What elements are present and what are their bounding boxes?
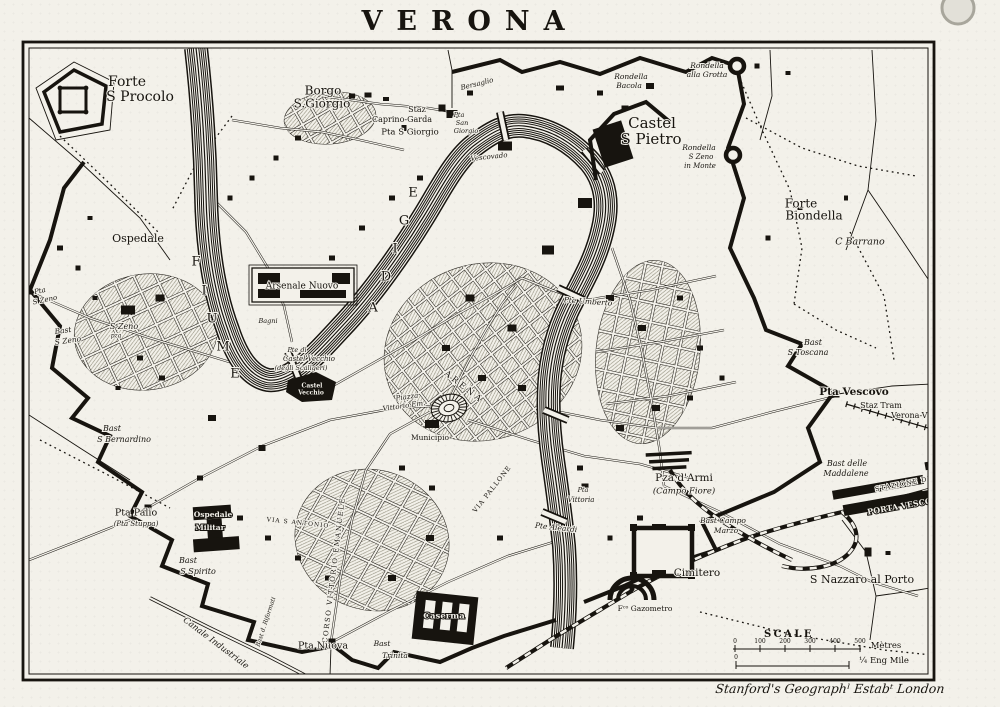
- map-label: D: [381, 270, 393, 285]
- map-label: Giorgio: [454, 127, 479, 135]
- map-label: Rondella: [689, 61, 724, 70]
- map-label: Marzo: [713, 526, 739, 535]
- railway-lines: [506, 404, 996, 668]
- map-label: Rondella: [681, 143, 716, 152]
- map-label: Arsenale Nuovo: [265, 282, 339, 292]
- publisher-credit: Stanford's Geographˡ Estabᵗ London: [699, 681, 961, 696]
- scan-artifact-circle: [942, 0, 974, 24]
- map-label: Vittoria: [568, 496, 595, 504]
- scanned-map-page: VERONA SCALE0100200300400500Mètres0¼ Eng…: [0, 0, 1000, 707]
- map-label: S Nazzaro al Porto: [810, 573, 915, 586]
- map-label: S Zeno: [689, 153, 714, 161]
- svg-text:Mètres: Mètres: [871, 640, 902, 651]
- map-label: in Monte: [684, 162, 716, 170]
- map-label: G: [399, 214, 411, 229]
- map-label: Borgo: [305, 84, 342, 98]
- map-label: Pte di: [286, 346, 306, 354]
- svg-text:200: 200: [779, 638, 791, 645]
- map-label: Maddalene: [822, 469, 868, 478]
- map-label: Bast d. Riformati: [254, 596, 277, 648]
- map-label: S.Giorgio: [294, 97, 351, 111]
- map-label: alla Grotta: [687, 70, 728, 79]
- map-label: Pta Vescovo: [819, 386, 888, 398]
- map-label: Bast: [102, 424, 122, 433]
- map-label: Staz Tram: [860, 401, 902, 410]
- map-label: S Toscana: [788, 348, 829, 357]
- map-label: (Pta Stuppa): [114, 520, 159, 528]
- map-label: S Procolo: [106, 89, 174, 105]
- map-label: Castel Vecchio: [283, 355, 335, 363]
- canale-industriale: [150, 598, 318, 682]
- map-label: Municipio: [411, 433, 450, 442]
- map-label: A: [367, 301, 379, 316]
- map-label: C Barrano: [835, 237, 885, 248]
- svg-text:0: 0: [733, 638, 737, 645]
- svg-text:400: 400: [829, 638, 841, 645]
- map-label: Ospedale: [112, 232, 164, 245]
- map-label: S Spirito: [180, 567, 216, 576]
- map-label: Pta Palio: [115, 508, 158, 519]
- map-label: Pta: [577, 486, 589, 494]
- map-label: Biondella: [785, 209, 842, 223]
- verona-city-map: SCALE0100200300400500Mètres0¼ Eng Mile F…: [0, 0, 1000, 707]
- map-label: S Zeno: [110, 322, 138, 331]
- map-label: Bast Campo: [699, 516, 746, 525]
- map-label: Fᶜᵒ Gazometro: [618, 604, 673, 613]
- map-label: Bast: [373, 639, 392, 648]
- map-label: Bast delle: [826, 459, 867, 468]
- map-label: Ospedale: [194, 510, 233, 519]
- map-label: (Campo Fiore): [653, 486, 715, 497]
- map-label: Rondella: [613, 72, 648, 81]
- map-label: Pta: [453, 111, 465, 119]
- map-label: Pta: [32, 286, 46, 296]
- map-label: Trinita: [382, 651, 408, 660]
- map-label: U: [207, 312, 220, 327]
- map-label: Caprino-Garda: [372, 115, 432, 124]
- map-label: Castel: [302, 383, 324, 390]
- map-label: M: [216, 340, 231, 355]
- map-label: San: [456, 119, 469, 127]
- map-label: pza: [111, 333, 122, 340]
- map-label: Caserma: [423, 612, 465, 622]
- map-label: Pta S Giorgio: [381, 128, 438, 138]
- map-label: Bagni: [257, 317, 277, 325]
- map-label: Bersaglio: [459, 76, 494, 92]
- svg-text:0: 0: [734, 654, 738, 661]
- map-label: Pta Nuova: [298, 641, 348, 652]
- map-label: Forte: [108, 74, 146, 90]
- map-label: Cimitero: [674, 567, 720, 579]
- map-label: Staz: [408, 105, 426, 114]
- map-label: S Bernardino: [97, 435, 151, 444]
- map-label: I: [201, 284, 208, 299]
- map-label: I: [392, 242, 399, 257]
- svg-text:300: 300: [804, 638, 816, 645]
- svg-text:¼ Eng Mile: ¼ Eng Mile: [859, 655, 909, 666]
- map-label: S Pietro: [620, 130, 681, 148]
- map-label: (degli Scaligeri): [275, 364, 328, 372]
- scale-bar: SCALE0100200300400500Mètres0¼ Eng Mile: [733, 629, 909, 669]
- map-label: E: [408, 186, 420, 201]
- map-label: Bast: [53, 325, 73, 337]
- map-label: Vecchio: [297, 390, 324, 397]
- map-label: Bast: [803, 338, 823, 347]
- map-label: E: [230, 367, 242, 382]
- map-label: Verona-Vicenz.: [890, 411, 951, 420]
- svg-text:500: 500: [854, 638, 866, 645]
- map-label: F: [191, 255, 202, 270]
- map-label: VIA PALLONE: [470, 464, 513, 515]
- svg-text:100: 100: [754, 638, 766, 645]
- map-label: Bast: [178, 556, 198, 565]
- map-label: Pza d'Armi: [655, 472, 713, 484]
- map-label: Militar: [195, 523, 225, 532]
- map-label: Bacola: [615, 81, 642, 90]
